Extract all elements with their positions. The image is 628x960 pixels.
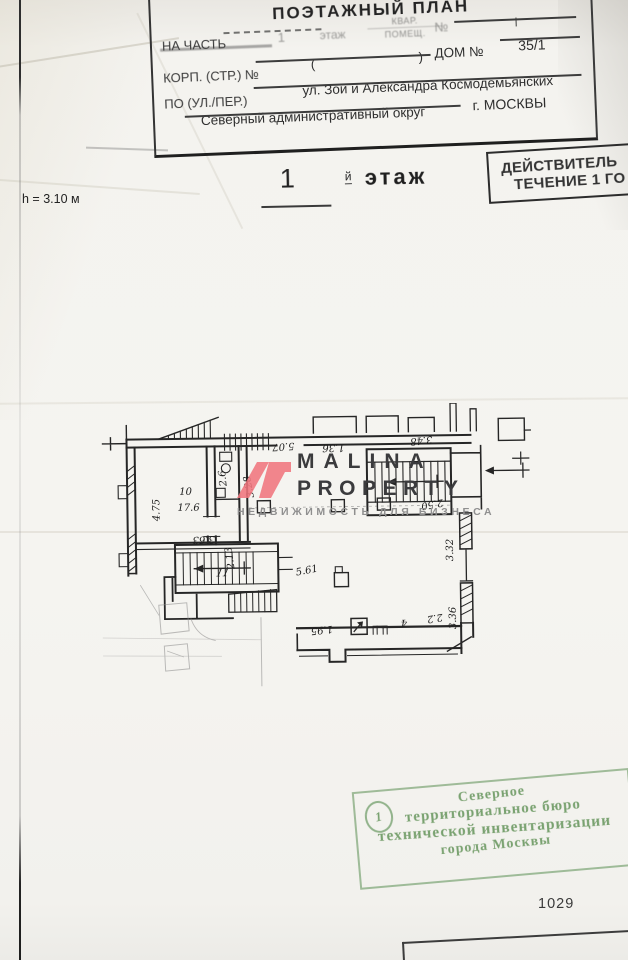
dim-label: 3.63 xyxy=(192,533,215,545)
paren-close: ) xyxy=(418,49,423,64)
dim-label: 4.75 xyxy=(151,499,162,522)
header-table: ПОЭТАЖНЫЙ ПЛАН НА ЧАСТЬ 1 этаж КВАР. ПОМ… xyxy=(148,0,598,158)
rule-line xyxy=(256,54,431,63)
street-label: ПО (УЛ./ПЕР.) xyxy=(164,93,248,111)
watermark-title-bottom: PROPERTY xyxy=(297,477,465,501)
plan-pencil-marks xyxy=(102,584,261,688)
dim-label: 2.2 xyxy=(426,611,444,624)
floor-part-value: 1 xyxy=(277,30,285,45)
dim-label: 2.6 xyxy=(217,469,230,488)
bti-stamp: 1 Северное территориальное бюро техничес… xyxy=(352,768,628,890)
scanned-floor-plan-page: ПОЭТАЖНЫЙ ПЛАН НА ЧАСТЬ 1 этаж КВАР. ПОМ… xyxy=(0,0,628,960)
floor-number: 1 xyxy=(279,163,295,194)
dim-label: 5.07 xyxy=(271,440,295,452)
etazh-word: этаж xyxy=(319,27,345,42)
dim-label: 3.48 xyxy=(410,433,433,446)
watermark-title-top: MALINA xyxy=(297,450,433,474)
premise-number-value: I xyxy=(514,14,518,29)
scan-edge-line xyxy=(19,0,21,960)
rule-line xyxy=(223,28,321,34)
dim-label: 3.36 xyxy=(448,606,459,629)
bottom-partial-box xyxy=(402,926,628,960)
floor-label: 1 й этаж xyxy=(254,160,465,214)
city-value: г. МОСКВЫ xyxy=(472,94,546,113)
room-number: 10 xyxy=(179,487,193,498)
ceiling-height-note: h = 3.10 м xyxy=(22,192,80,206)
floor-suffix: й xyxy=(345,169,352,184)
malina-logo-icon xyxy=(233,452,291,502)
dim-label: 4 xyxy=(401,617,409,628)
room-area: 17.6 xyxy=(177,503,200,514)
page-number: 1029 xyxy=(538,896,574,912)
kvar-pomesch-labels: КВАР. ПОМЕЩ. xyxy=(367,14,443,40)
number-sign-label: № xyxy=(434,19,449,35)
floor-plan-drawing: 10 17.6 11 4.75 3.63 2.13 3.28 2.6 5.07 … xyxy=(100,403,532,695)
rule-line xyxy=(261,205,331,208)
dim-label: 3.32 xyxy=(445,539,456,561)
floor-word: этаж xyxy=(365,164,428,191)
validity-stamp-box: ДЕЙСТВИТЕЛЬ ТЕЧЕНИЕ 1 ГО xyxy=(486,141,628,204)
korp-label: КОРП. (СТР.) № xyxy=(163,67,259,86)
watermark-subtitle: НЕДВИЖИМОСТЬ ДЛЯ БИЗНЕСА xyxy=(237,506,495,518)
plan-right-wall xyxy=(446,513,474,653)
dom-label: ДОМ № xyxy=(434,44,484,61)
dim-label: 5.61 xyxy=(295,564,319,579)
pomesch-label: ПОМЕЩ. xyxy=(367,25,442,40)
dim-label: 1.95 xyxy=(310,623,333,636)
dim-label: 2.13 xyxy=(224,546,238,571)
